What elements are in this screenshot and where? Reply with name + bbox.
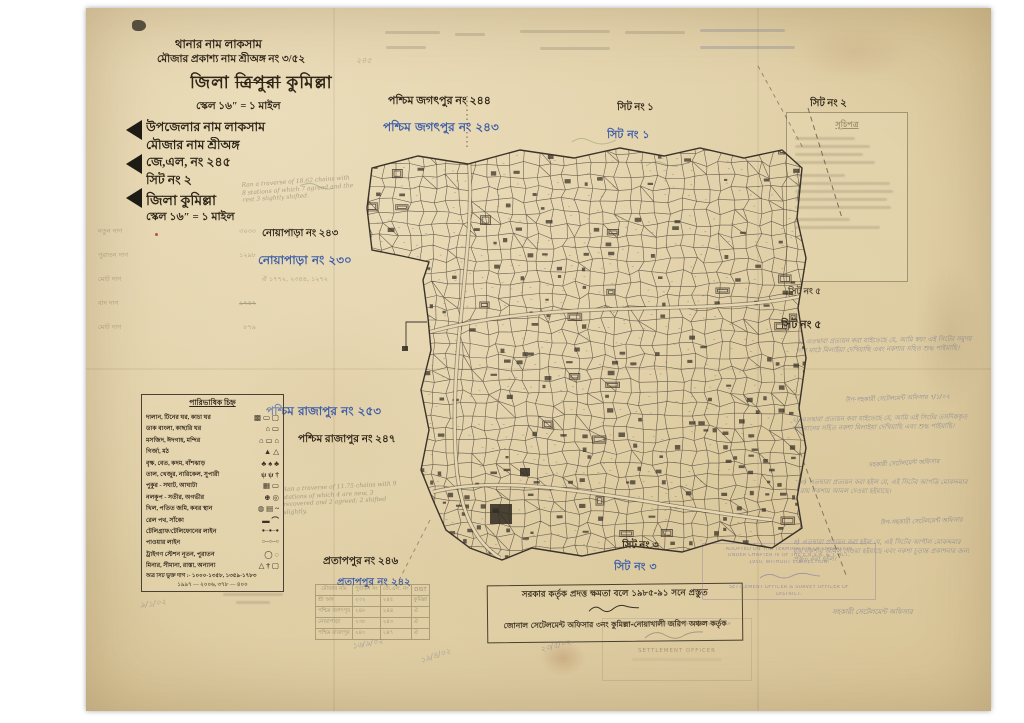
scanned-mouza-map-page: থানার নাম লাকসাম মৌজার প্রকাশ্য নাম শ্রী…: [0, 0, 1024, 723]
cadastral-map-canvas: [0, 0, 1024, 723]
